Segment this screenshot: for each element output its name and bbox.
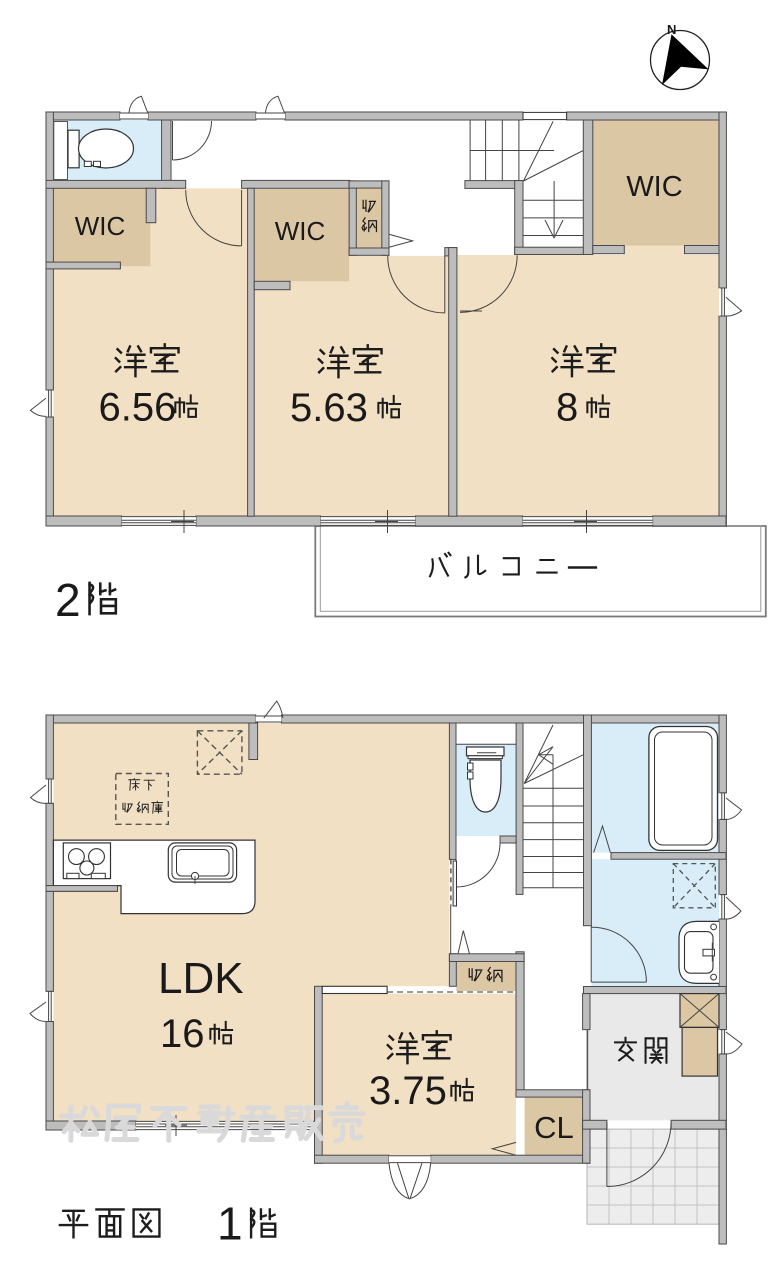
svg-text:6.56: 6.56 xyxy=(99,386,177,430)
svg-text:LDK: LDK xyxy=(158,954,244,1003)
svg-text:5.63: 5.63 xyxy=(290,386,368,430)
svg-text:1: 1 xyxy=(217,1198,243,1250)
svg-text:WIC: WIC xyxy=(75,211,126,241)
svg-text:2: 2 xyxy=(55,574,81,626)
svg-text:WIC: WIC xyxy=(626,171,682,203)
svg-text:3.75: 3.75 xyxy=(369,1069,447,1113)
svg-text:16: 16 xyxy=(160,1012,205,1056)
svg-text:CL: CL xyxy=(534,1110,574,1145)
svg-text:WIC: WIC xyxy=(275,216,326,246)
svg-text:8: 8 xyxy=(556,386,578,430)
svg-text:N: N xyxy=(667,22,676,37)
